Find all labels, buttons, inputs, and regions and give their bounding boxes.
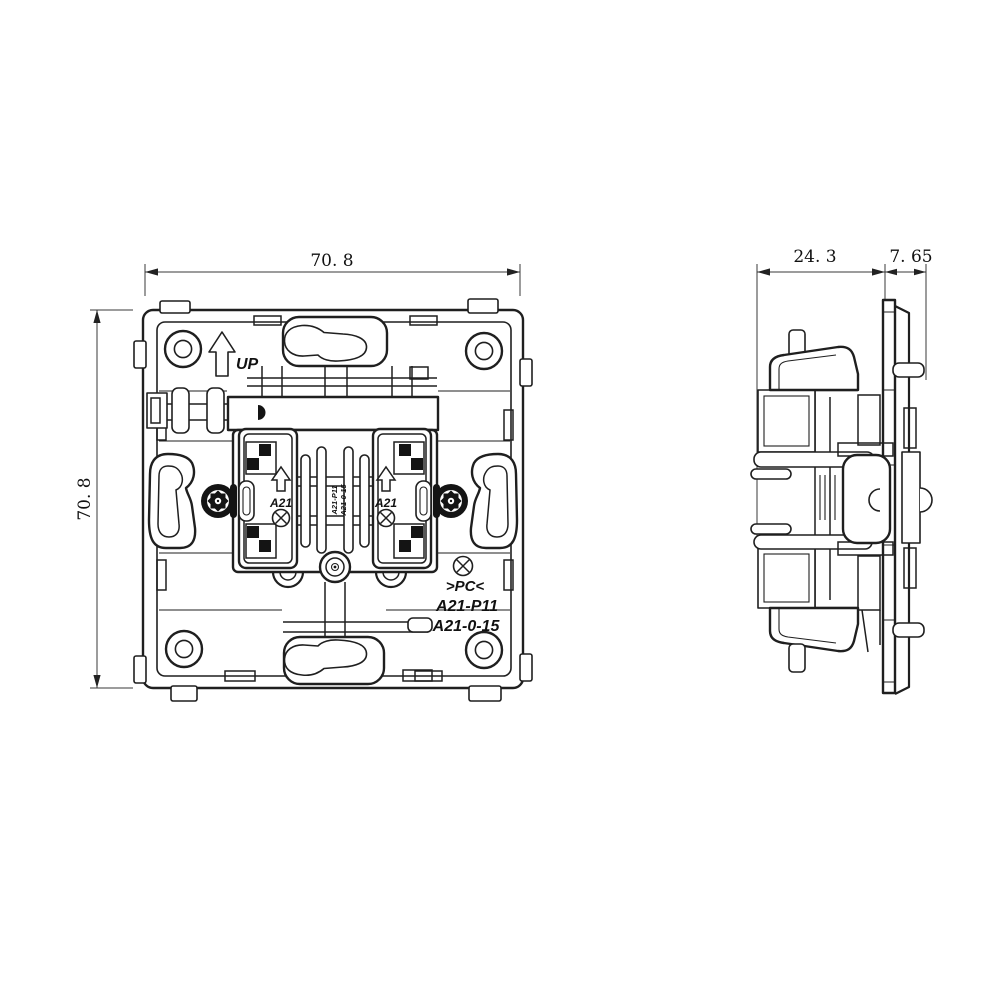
center-screw [320, 552, 350, 582]
terminal-label-right: A21 [374, 496, 397, 510]
dim-width-value: 70. 8 [310, 251, 353, 271]
crossed-circle-icon-bottom [454, 557, 473, 576]
center-marking-right: A21-0-15 [339, 484, 348, 517]
model-label-2: A21-0-15 [432, 618, 501, 635]
dim-height-value: 70. 8 [75, 477, 95, 520]
side-terminal-pin-bottom [751, 524, 791, 534]
side-claw-bottom [770, 608, 858, 672]
mounting-hole-bottom-right [466, 632, 502, 668]
mounting-hole-top-right [466, 333, 502, 369]
dim-depth-frame-value: 7. 65 [889, 247, 932, 267]
material-label: >PC< [446, 578, 485, 595]
crossed-circle-icon-right [378, 510, 395, 527]
crossed-circle-icon-left [273, 510, 290, 527]
pozidriv-screw-icon-right [434, 484, 468, 518]
side-housing [838, 443, 893, 555]
pozidriv-screw-icon-left [201, 484, 235, 518]
front-view: UP [134, 299, 532, 701]
switch-mechanism: A21-P11 A21-0-15 A21 A21 [228, 397, 440, 582]
side-mechanism-body [751, 330, 893, 672]
terminal-label-left: A21 [269, 496, 292, 510]
fixing-slot-bottom [284, 637, 384, 684]
claw-slot-right [471, 454, 517, 548]
technical-drawing-canvas: 70. 8 70. 8 24. 3 7. 65 [0, 0, 1000, 1000]
dimension-width-top: 70. 8 [145, 251, 520, 296]
mounting-hole-bottom-left [166, 631, 202, 667]
side-terminal-pin-top [751, 469, 791, 479]
side-frame-tab-bottom [893, 623, 924, 637]
center-marking-left: A21-P11 [330, 485, 339, 515]
side-frame-tab-top [893, 363, 924, 377]
fixing-slot-top [283, 317, 387, 366]
dim-depth-body-value: 24. 3 [793, 247, 836, 267]
side-contact-stack [820, 475, 835, 520]
claw-slot-left [149, 454, 195, 548]
cable-clamp [147, 388, 232, 433]
mounting-hole-top-left [165, 331, 201, 367]
dimension-height-left: 70. 8 [75, 310, 133, 688]
side-claw-top [770, 330, 858, 390]
model-label-1: A21-P11 [435, 598, 498, 615]
up-label: UP [236, 356, 259, 373]
side-view [751, 300, 932, 694]
